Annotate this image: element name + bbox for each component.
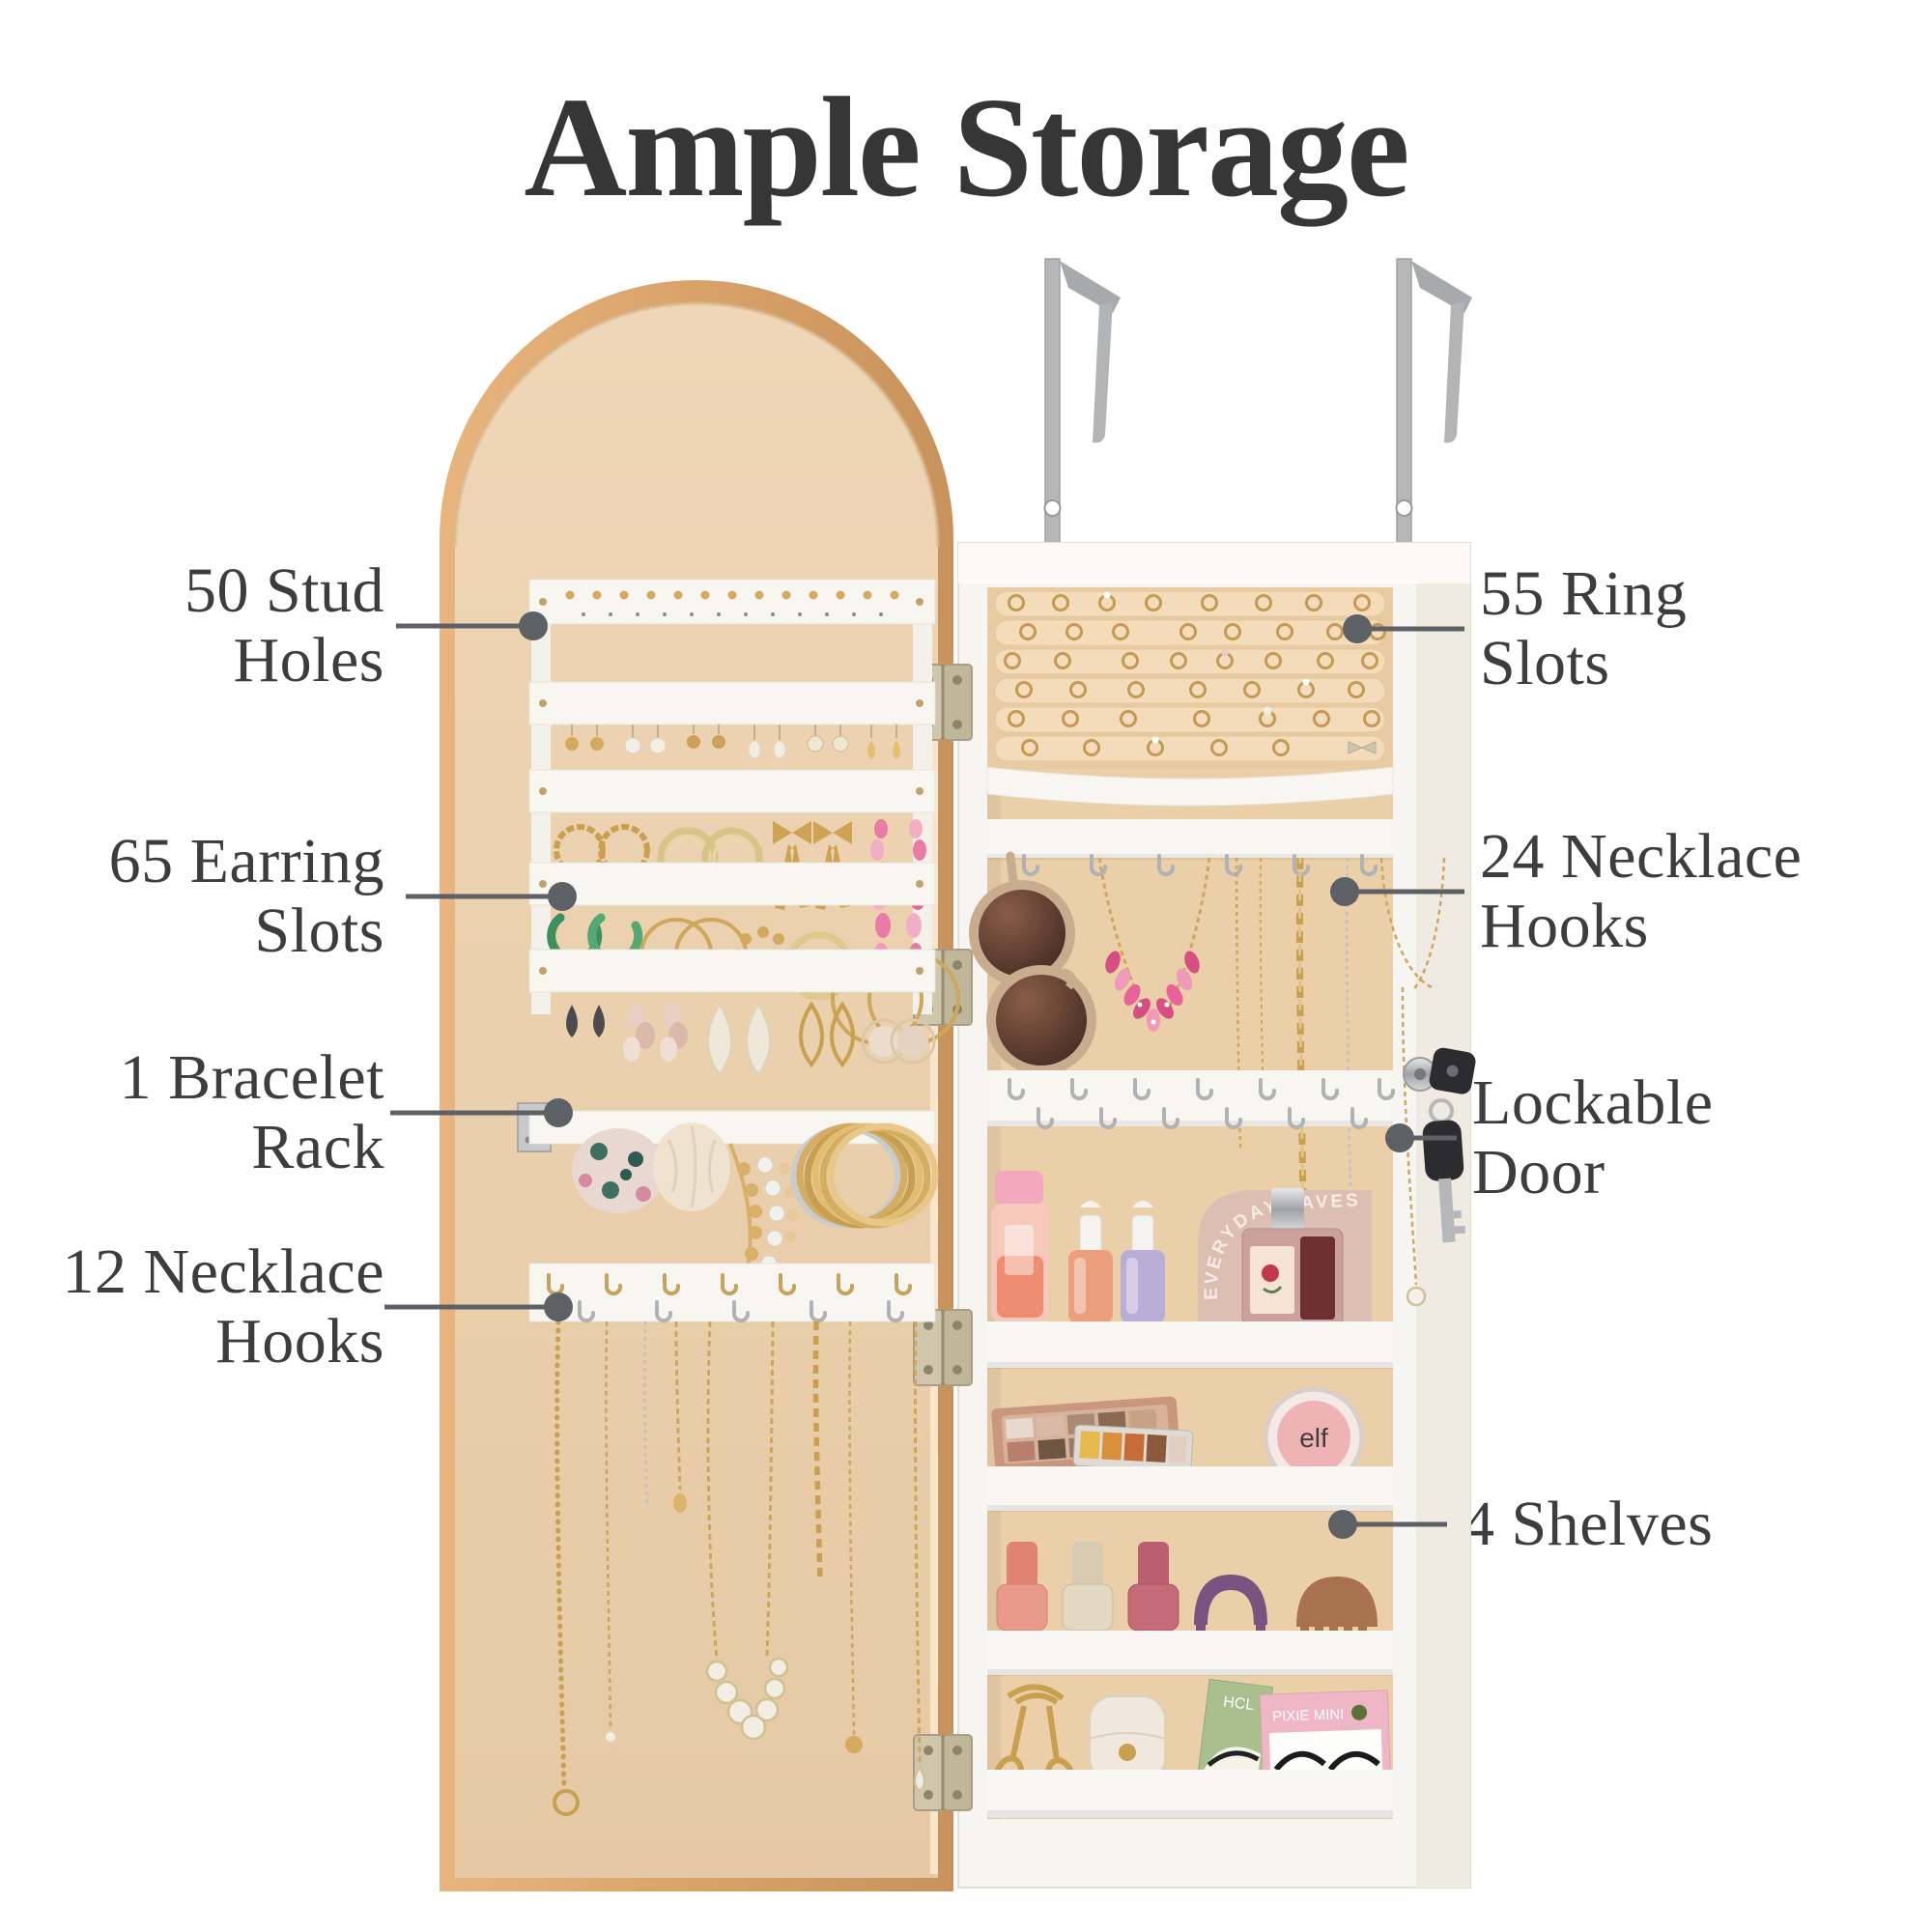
product-infographic: Ample Storage 50 Stud Holes 65 Earring S… xyxy=(0,0,1932,1932)
lash-box-pink-label: PIXIE MINI xyxy=(1272,1706,1345,1725)
scrunchie-cream xyxy=(653,1122,730,1211)
hook-rail-lower xyxy=(987,1070,1393,1127)
jewelry-armoire-illustration: EVERYDAY FAVES xyxy=(0,0,1932,1932)
shelf-ledge-3 xyxy=(987,1631,1393,1675)
key-in-lock xyxy=(1428,1046,1477,1095)
everyday-faves-card: EVERYDAY FAVES xyxy=(1198,1188,1372,1325)
mist-bottle-cap xyxy=(995,1171,1043,1206)
stud-holes-bar xyxy=(529,580,935,624)
blush-brand-label: elf xyxy=(1299,1423,1328,1453)
over-door-hook-left xyxy=(1045,259,1122,547)
shelf-ledge-1 xyxy=(987,1321,1393,1368)
perfume-cap xyxy=(1271,1188,1304,1231)
over-door-hook-right xyxy=(1397,259,1473,547)
leather-pouch xyxy=(1090,1696,1165,1781)
eyeshadow-palette-small xyxy=(1073,1425,1193,1471)
scrunchie-floral xyxy=(572,1128,665,1213)
shelf-ledge-2 xyxy=(987,1466,1393,1511)
necklace-rail-door xyxy=(529,1264,935,1321)
mirror-door xyxy=(440,280,953,1891)
